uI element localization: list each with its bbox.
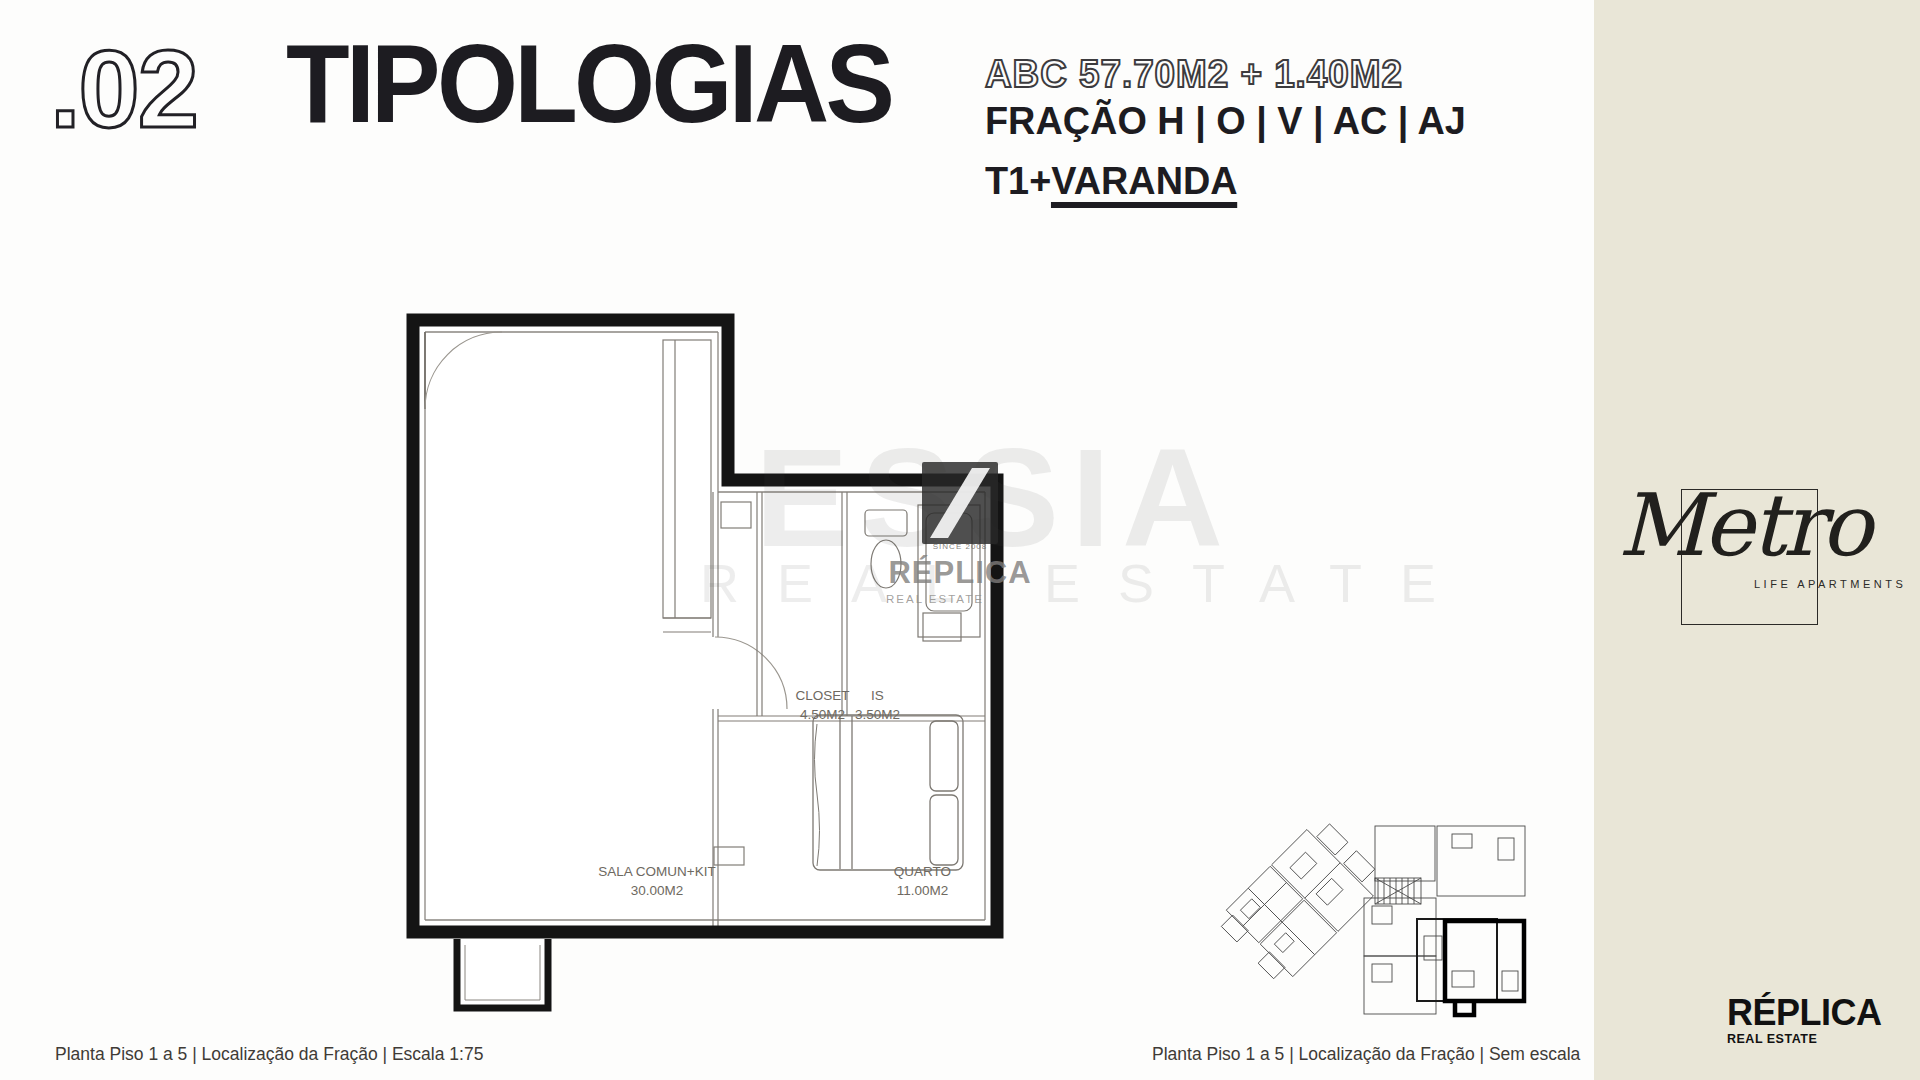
header-area-line: ABC 57.70M2 + 1.40M2 (985, 55, 1403, 93)
room-label-is: IS 3.50M2 (835, 687, 920, 725)
replica-footer-logo: RÉPLICA REAL ESTATE (1727, 995, 1882, 1046)
typology-underlined: VARANDA (1051, 161, 1237, 208)
site-plan-highlighted-unit (1445, 921, 1524, 1015)
site-plan-caption: Planta Piso 1 a 5 | Localização da Fraçã… (1152, 1044, 1580, 1065)
floor-plan: SALA COMUN+KIT 30.00M2 CLOSET 4.50M2 IS … (405, 312, 1005, 1012)
metro-logo-script: Metro (1618, 478, 1918, 573)
site-plan-rotated-wing (1216, 815, 1388, 987)
presentation-slide: Metro LIFE APARTMENTS .02 TIPOLOGIAS ABC… (0, 0, 1920, 1080)
metro-logo-subtitle: LIFE APARTMENTS (1754, 578, 1906, 590)
replica-footer-name: RÉPLICA (1727, 995, 1882, 1031)
page-title: TIPOLOGIAS (286, 28, 891, 140)
site-plan-drawing (1212, 786, 1532, 1028)
replica-footer-sub: REAL ESTATE (1727, 1032, 1882, 1046)
metro-logo: Metro LIFE APARTMENTS (1618, 470, 1918, 670)
room-label-sala: SALA COMUN+KIT 30.00M2 (557, 863, 757, 901)
varanda (457, 939, 548, 1008)
typology-prefix: T1+ (985, 159, 1051, 202)
site-plan (1212, 786, 1532, 1028)
header-typology-line: T1+VARANDA (985, 160, 1238, 208)
section-index: .02 (50, 34, 197, 144)
room-label-quarto: QUARTO 11.00M2 (860, 863, 985, 901)
floor-plan-drawing (405, 312, 1005, 1012)
floor-plan-caption: Planta Piso 1 a 5 | Localização da Fraçã… (55, 1044, 483, 1065)
unit-floor-fill (413, 320, 997, 932)
header-fraction-line: FRAÇÃO H | O | V | AC | AJ (985, 100, 1466, 143)
